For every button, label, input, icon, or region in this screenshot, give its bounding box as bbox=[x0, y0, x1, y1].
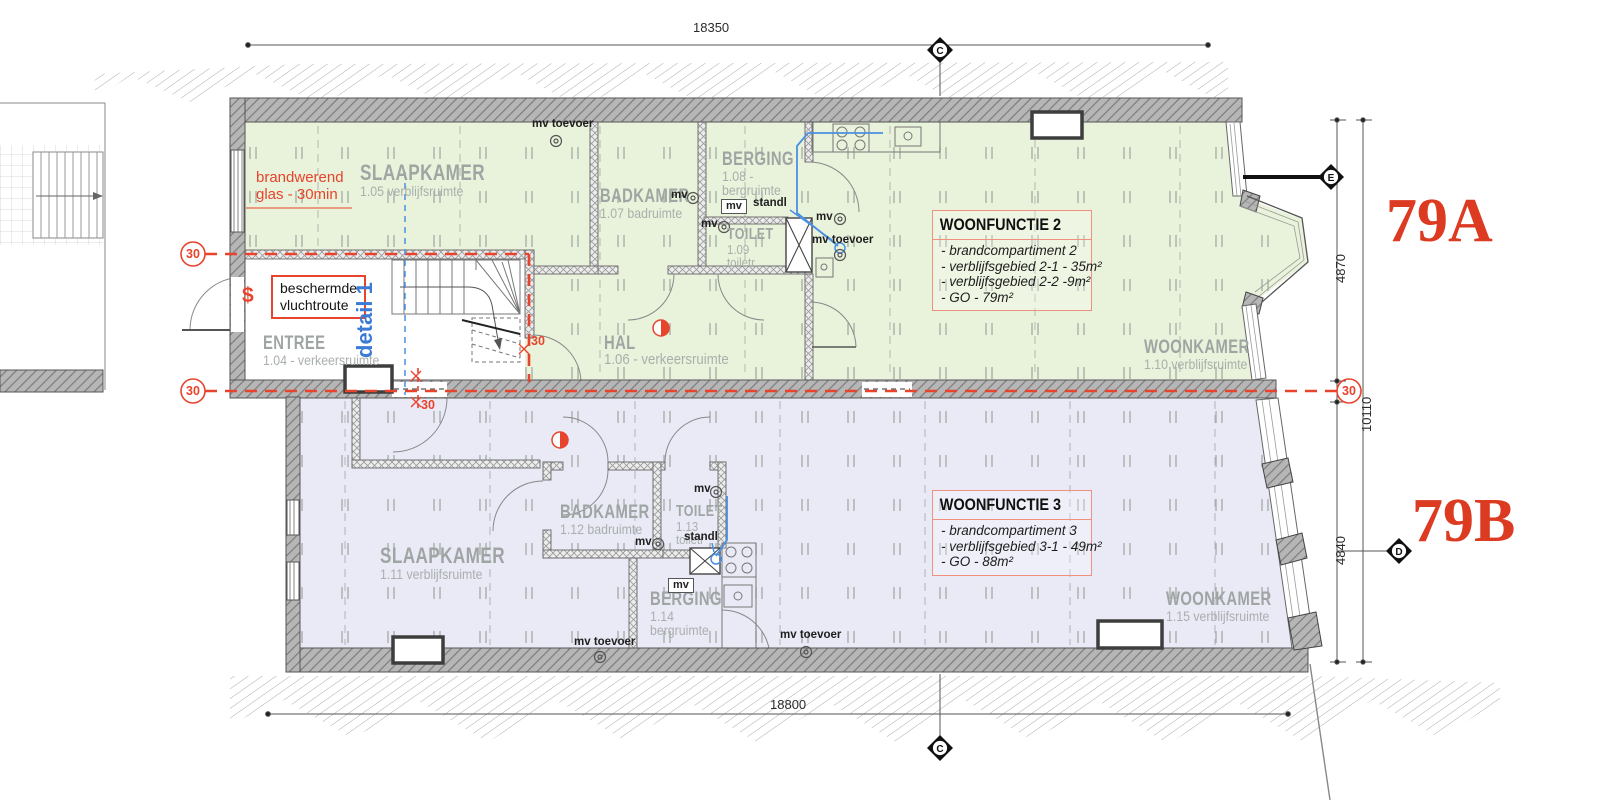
room-info-hal-a: 1.06 - verkeersruimte bbox=[604, 351, 729, 368]
mv-toevoer-label: mv toevoer bbox=[532, 118, 593, 130]
room-info-badkamer-a: 1.07 badruimte bbox=[600, 205, 682, 221]
dimension-bottom: 18800 bbox=[770, 697, 806, 712]
neighbor-stairwell bbox=[0, 103, 105, 392]
fire-rating-left-upper: 30 bbox=[183, 247, 203, 261]
grid-marker-c-bottom: C bbox=[927, 735, 953, 761]
room-info-woonkamer-b: 1.15 verblijfsruimte bbox=[1166, 608, 1269, 624]
fire-glass-note-line2: glas - 30min bbox=[256, 186, 338, 203]
dimension-top: 18350 bbox=[693, 20, 729, 35]
room-info-slaapkamer-b: 1.11 verblijfsruimte bbox=[380, 566, 482, 582]
mv-label: mv bbox=[671, 189, 688, 201]
grid-letter: E bbox=[1328, 173, 1335, 184]
info-box-woonfunctie-2: WOONFUNCTIE 2 - brandcompartiment 2 - ve… bbox=[932, 210, 1092, 311]
ground-hatch-bottom bbox=[230, 664, 1500, 800]
info-box-line: - brandcompartiment 3 bbox=[941, 523, 1083, 539]
info-box-line: - brandcompartiment 2 bbox=[941, 243, 1083, 259]
fire-rating-stair-bottom: 30 bbox=[418, 398, 438, 412]
mv-box-label: mv bbox=[721, 199, 747, 214]
info-box-line: - verblijfsgebied 2-2 -9m² bbox=[941, 274, 1083, 290]
info-box-line: - verblijfsgebied 3-1 - 49m² bbox=[941, 539, 1083, 555]
room-info-entree-a: 1.04 - verkeersruimte bbox=[263, 352, 379, 368]
unit-b-floor bbox=[300, 397, 1293, 649]
standl-label: standl bbox=[684, 531, 718, 543]
fire-rating-left-lower: 30 bbox=[183, 384, 203, 398]
section-symbol: $ bbox=[242, 284, 254, 308]
standl-label: standl bbox=[753, 197, 787, 209]
info-box-line: - verblijfsgebied 2-1 - 35m² bbox=[941, 259, 1083, 275]
fire-rating-right: 30 bbox=[1339, 384, 1359, 398]
dimension-right-lower: 4840 bbox=[1333, 536, 1348, 565]
mv-toevoer-label: mv toevoer bbox=[780, 629, 841, 641]
mv-toevoer-label: mv toevoer bbox=[574, 636, 635, 648]
room-info-slaapkamer-a: 1.05 verblijfsruimte bbox=[360, 183, 463, 199]
room-info-woonkamer-a: 1.10 verblijfsruimte bbox=[1144, 356, 1247, 372]
mv-box-label: mv bbox=[668, 578, 694, 593]
room-info2-berging-b: bergruimte bbox=[650, 622, 709, 638]
floor-plan-page: C C E D bbox=[0, 0, 1600, 802]
detail-reference: detail 1 bbox=[352, 282, 378, 358]
mv-label: mv bbox=[816, 211, 833, 223]
info-box-title: WOONFUNCTIE 3 bbox=[933, 491, 1067, 517]
escape-route-line1: beschermde bbox=[280, 280, 357, 297]
house-number-79a: 79A bbox=[1386, 186, 1493, 257]
fire-rating-stair-side: 30 bbox=[528, 334, 548, 348]
mv-label: mv bbox=[701, 218, 718, 230]
grid-letter: C bbox=[936, 46, 943, 57]
dimension-right-upper: 4870 bbox=[1333, 254, 1348, 283]
room-info2-toilet-a: toiletr. bbox=[727, 255, 758, 270]
fire-glass-note-line1: brandwerend bbox=[256, 169, 344, 186]
dimension-right-middle: 10110 bbox=[1359, 397, 1374, 432]
grid-letter: C bbox=[936, 744, 943, 755]
info-box-line: - GO - 88m² bbox=[941, 554, 1083, 570]
smoke-detector-icon bbox=[552, 432, 568, 448]
grid-marker-e: E bbox=[1318, 164, 1344, 190]
smoke-detector-icon bbox=[653, 320, 669, 336]
mv-label: mv bbox=[694, 483, 711, 495]
mv-label: mv bbox=[635, 536, 652, 548]
escape-route-line2: vluchtroute bbox=[280, 297, 357, 314]
grid-marker-c-top: C bbox=[927, 37, 953, 63]
info-box-line: - GO - 79m² bbox=[941, 290, 1083, 306]
room-info-badkamer-b: 1.12 badruimte bbox=[560, 521, 642, 537]
info-box-woonfunctie-3: WOONFUNCTIE 3 - brandcompartiment 3 - ve… bbox=[932, 490, 1092, 576]
house-number-79b: 79B bbox=[1412, 486, 1515, 557]
grid-letter: D bbox=[1395, 547, 1402, 558]
room-info2-berging-a: bergruimte bbox=[722, 182, 781, 198]
info-box-title: WOONFUNCTIE 2 bbox=[933, 211, 1067, 237]
mv-toevoer-label: mv toevoer bbox=[812, 234, 873, 246]
grid-marker-d: D bbox=[1386, 538, 1412, 564]
